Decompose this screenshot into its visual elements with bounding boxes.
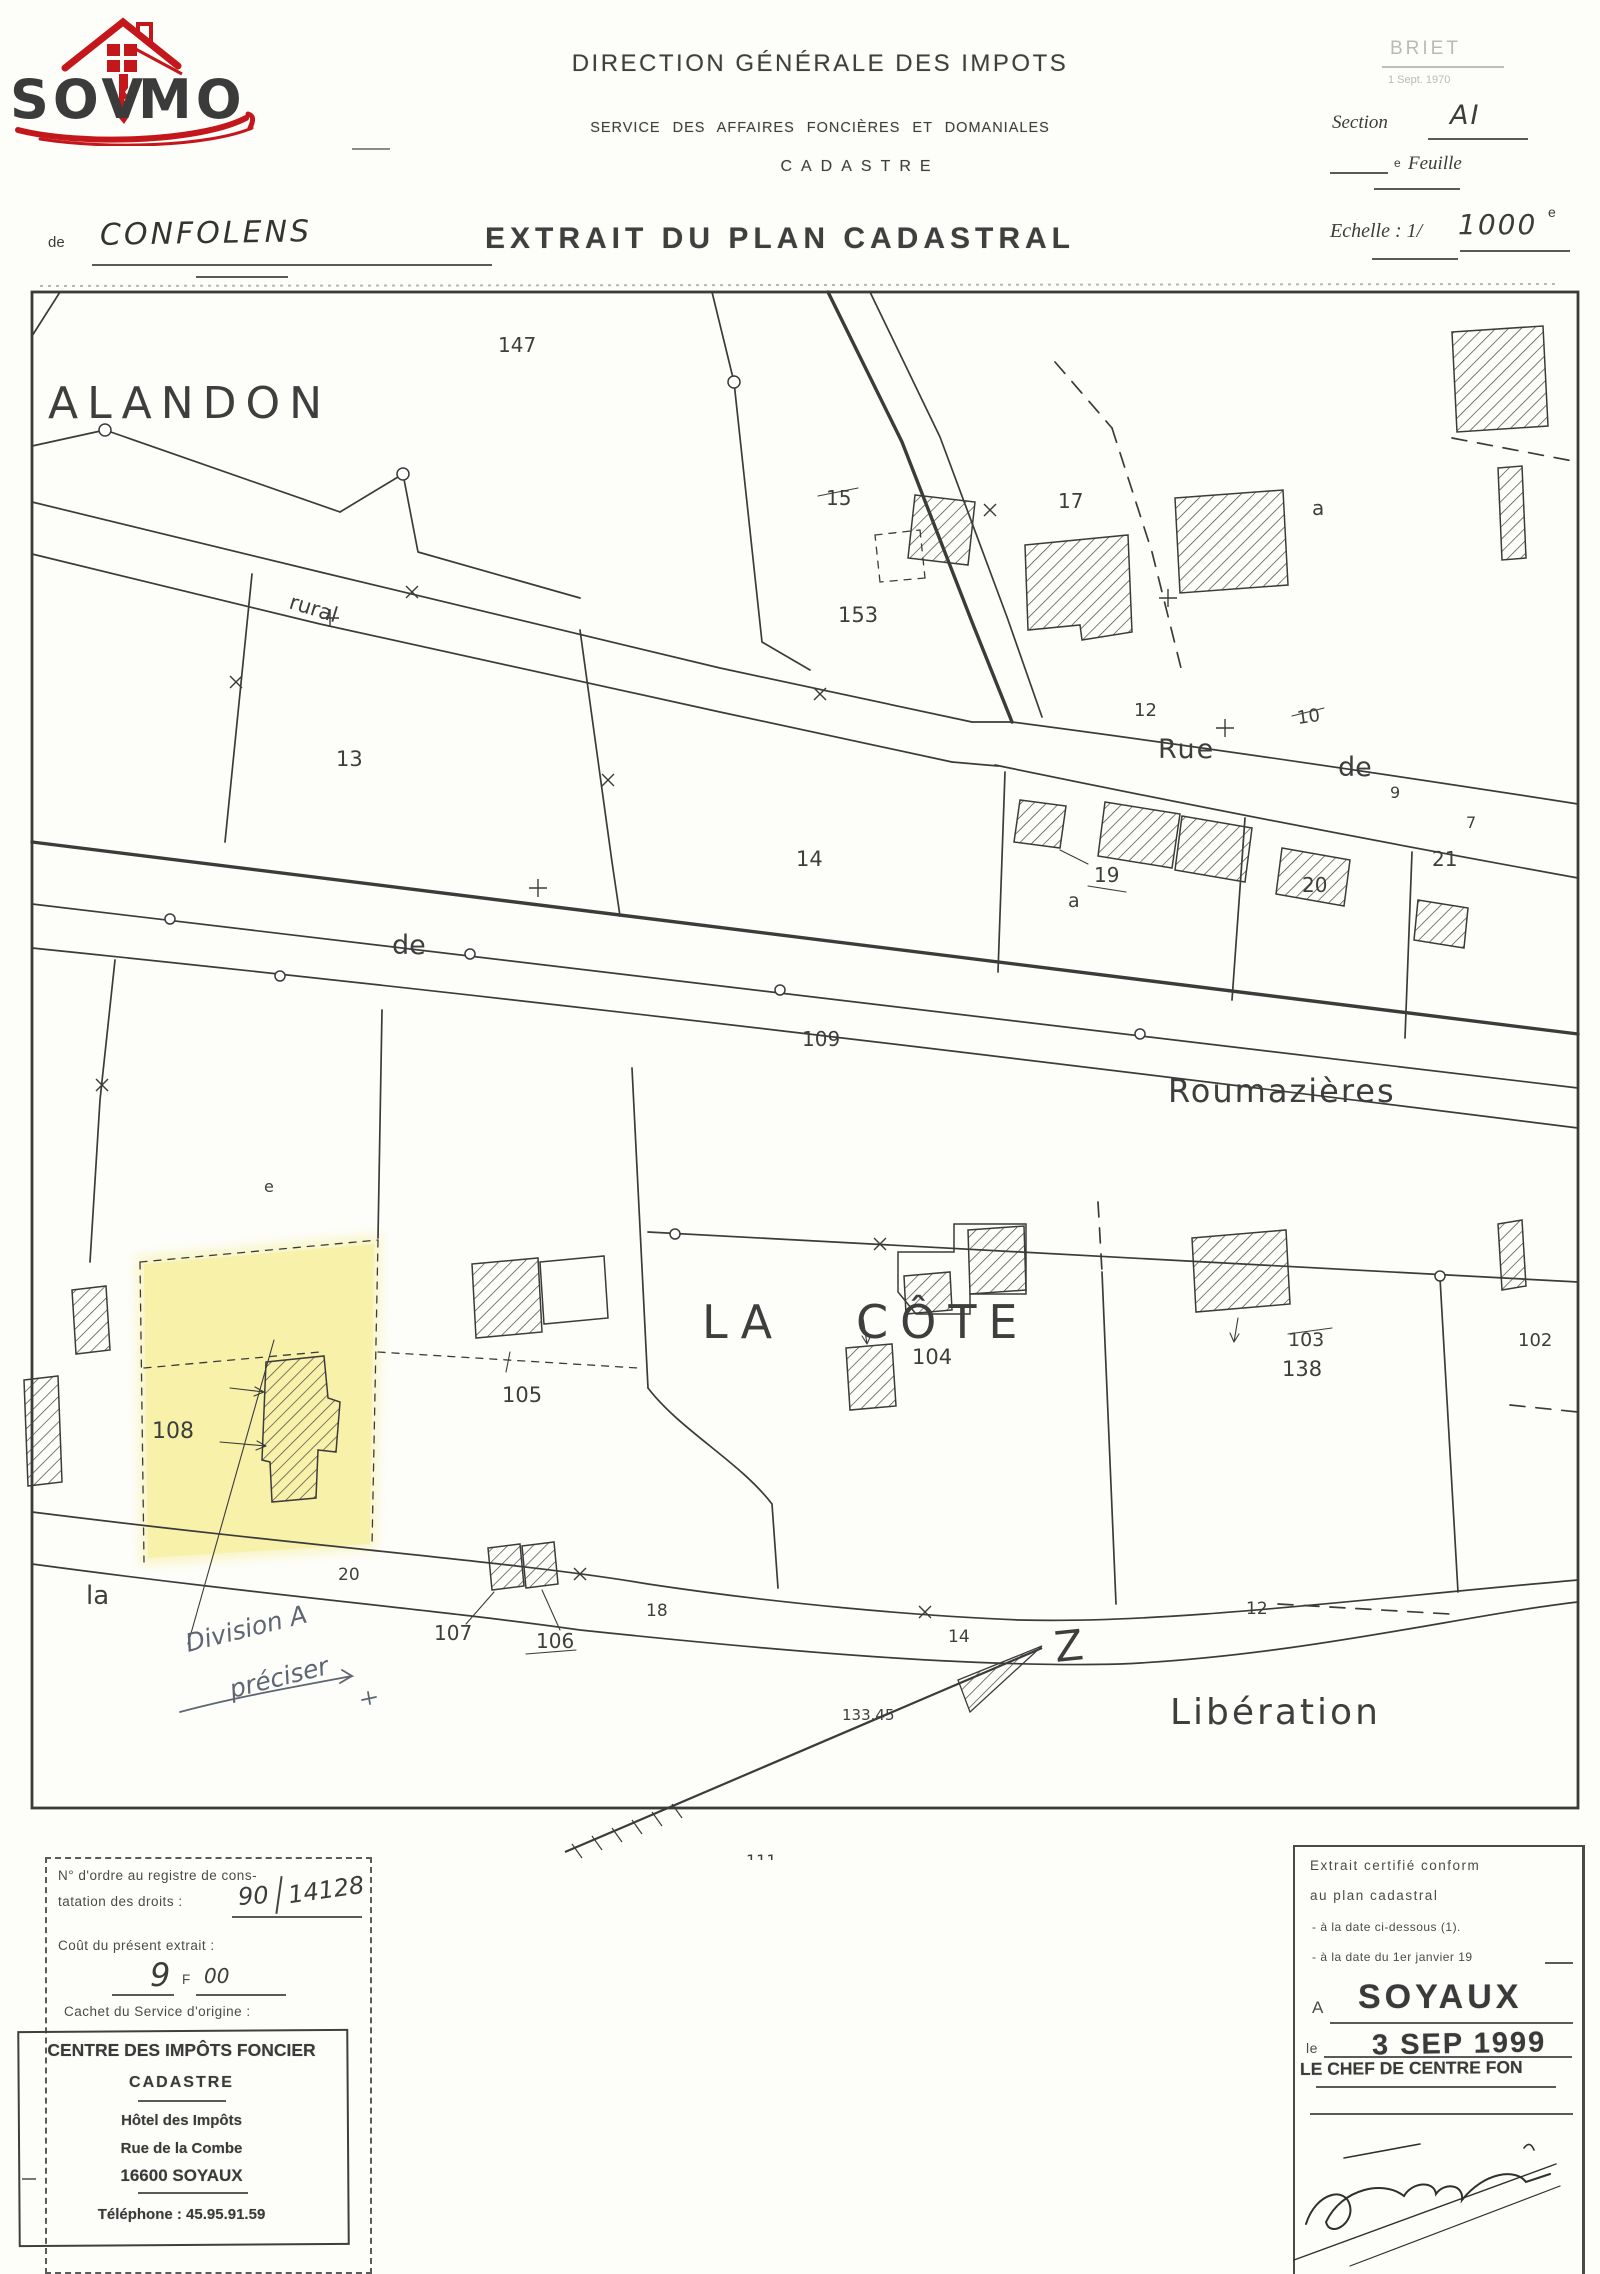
- cachet-label: Cachet du Service d'origine :: [64, 2004, 251, 2019]
- roadnum-14: 14: [948, 1627, 970, 1647]
- parcel-a-top: a: [1312, 496, 1324, 520]
- cadastral-extract-page: SOV MO DIRECTION GÉNÉRALE DES IMPOTS SER…: [0, 0, 1600, 2274]
- feuille-label: Feuille: [1408, 153, 1462, 175]
- registry-line1: N° d'ordre au registre de cons-: [58, 1868, 257, 1883]
- certified-line3: - à la date ci-dessous (1).: [1312, 1920, 1461, 1934]
- stamp-cadastre: CADASTRE: [18, 2074, 345, 2092]
- section-value: AI: [1450, 100, 1480, 131]
- parcel-147: 147: [498, 333, 536, 357]
- parcel-e: e: [264, 1177, 274, 1196]
- cost-cents: 00: [204, 1964, 229, 1988]
- roadnum-20: 20: [338, 1565, 360, 1585]
- road-parcel-109: 109: [802, 1027, 840, 1051]
- highlight-parcel-108: [136, 1234, 382, 1566]
- cost-value: 9: [150, 1956, 170, 1994]
- stamp-rue-combe: Rue de la Combe: [18, 2140, 345, 2157]
- road-label-roumazieres: Roumazières: [1168, 1072, 1396, 1110]
- place-label-cote: CÔTE: [856, 1294, 1030, 1349]
- parcel-153: 153: [838, 603, 878, 627]
- signature: [1288, 2124, 1588, 2272]
- roadnum-12: 12: [1246, 1599, 1268, 1619]
- scan-dash: [352, 148, 390, 150]
- parcel-104: 104: [912, 1345, 952, 1369]
- road-label-rue: Rue: [1158, 734, 1215, 765]
- stamp-centre-impots: CENTRE DES IMPÔTS FONCIER: [18, 2040, 345, 2061]
- corner-stamp-date: 1 Sept. 1970: [1388, 74, 1450, 86]
- annotation-division: Division A: [182, 1600, 309, 1658]
- roadnum-18: 18: [646, 1601, 668, 1621]
- cost-currency: F: [182, 1972, 191, 1987]
- housenum-10: 10: [1296, 705, 1322, 729]
- road-label-liberation: Libération: [1170, 1692, 1381, 1733]
- place-label-alandon: ALANDON: [48, 378, 331, 429]
- housenum-12: 12: [1134, 700, 1157, 721]
- registry-line2: tatation des droits :: [58, 1894, 183, 1909]
- parcel-14: 14: [796, 847, 823, 871]
- parcel-a-mid: a: [1068, 890, 1080, 912]
- stamp-telephone: Téléphone : 45.95.91.59: [18, 2206, 345, 2223]
- road-label-de: de: [392, 930, 426, 961]
- parcel-108: 108: [152, 1419, 194, 1444]
- logo-text-right: MO: [138, 68, 246, 131]
- parcel-105: 105: [502, 1383, 542, 1407]
- parcel-17: 17: [1058, 489, 1083, 513]
- agency-line1: DIRECTION GÉNÉRALE DES IMPOTS: [500, 50, 1140, 78]
- annotation-preciser: préciser: [225, 1651, 333, 1704]
- cadastral-map: ALANDON 147 rural 15 153 17 a 12 Rue 10 …: [20, 200, 1590, 1860]
- parcel-15: 15: [826, 486, 851, 510]
- registry-number-1: 90: [237, 1881, 269, 1911]
- sovimo-logo: SOV MO: [10, 6, 260, 146]
- parcel-111: 111: [746, 1851, 777, 1860]
- road-label-de-rue: de: [1338, 752, 1372, 783]
- parcel-19: 19: [1094, 863, 1119, 887]
- stamp-soyaux-address: 16600 SOYAUX: [18, 2166, 345, 2186]
- pencil-annotation: Division A préciser: [180, 1600, 376, 1712]
- place-label-la: LA: [702, 1295, 784, 1349]
- north-arrow: [565, 1646, 1042, 1858]
- parcel-107: 107: [434, 1621, 472, 1645]
- north-symbol: Z: [1052, 1620, 1086, 1672]
- parcel-138: 138: [1282, 1357, 1322, 1381]
- stamp-hotel: Hôtel des Impôts: [18, 2112, 345, 2129]
- parcel-20: 20: [1302, 873, 1327, 897]
- le-label: le: [1306, 2040, 1318, 2056]
- dashed-boundaries: [1055, 362, 1578, 1614]
- parcel-21: 21: [1432, 847, 1457, 871]
- strikethroughs: [526, 488, 1332, 1654]
- city-stamp: SOYAUX: [1358, 1978, 1522, 2017]
- parcel-103: 103: [1288, 1329, 1324, 1351]
- cost-label: Coût du présent extrait :: [58, 1938, 215, 1953]
- parcel-102: 102: [1518, 1330, 1552, 1351]
- parcel-13: 13: [336, 747, 363, 771]
- a-label: A: [1312, 1998, 1324, 2018]
- section-label: Section: [1332, 112, 1388, 134]
- certified-line1: Extrait certifié conform: [1310, 1858, 1480, 1873]
- certified-line4: - à la date du 1er janvier 19: [1312, 1950, 1473, 1964]
- housenum-7: 7: [1466, 813, 1476, 832]
- agency-line3: CADASTRE: [560, 158, 1160, 176]
- feuille-sup: e: [1394, 156, 1401, 170]
- parcel-106: 106: [536, 1629, 574, 1653]
- certified-line2: au plan cadastral: [1310, 1888, 1438, 1903]
- housenum-9: 9: [1390, 783, 1400, 802]
- road-label-la: la: [86, 1581, 109, 1611]
- distance-133-45: 133.45: [842, 1706, 895, 1724]
- logo-text-left: SOV: [10, 68, 147, 131]
- chief-stamp: LE CHEF DE CENTRE FON: [1300, 2057, 1523, 2080]
- agency-line2: SERVICE DES AFFAIRES FONCIÈRES ET DOMANI…: [500, 120, 1140, 136]
- corner-stamp-name: BRIET: [1390, 38, 1461, 60]
